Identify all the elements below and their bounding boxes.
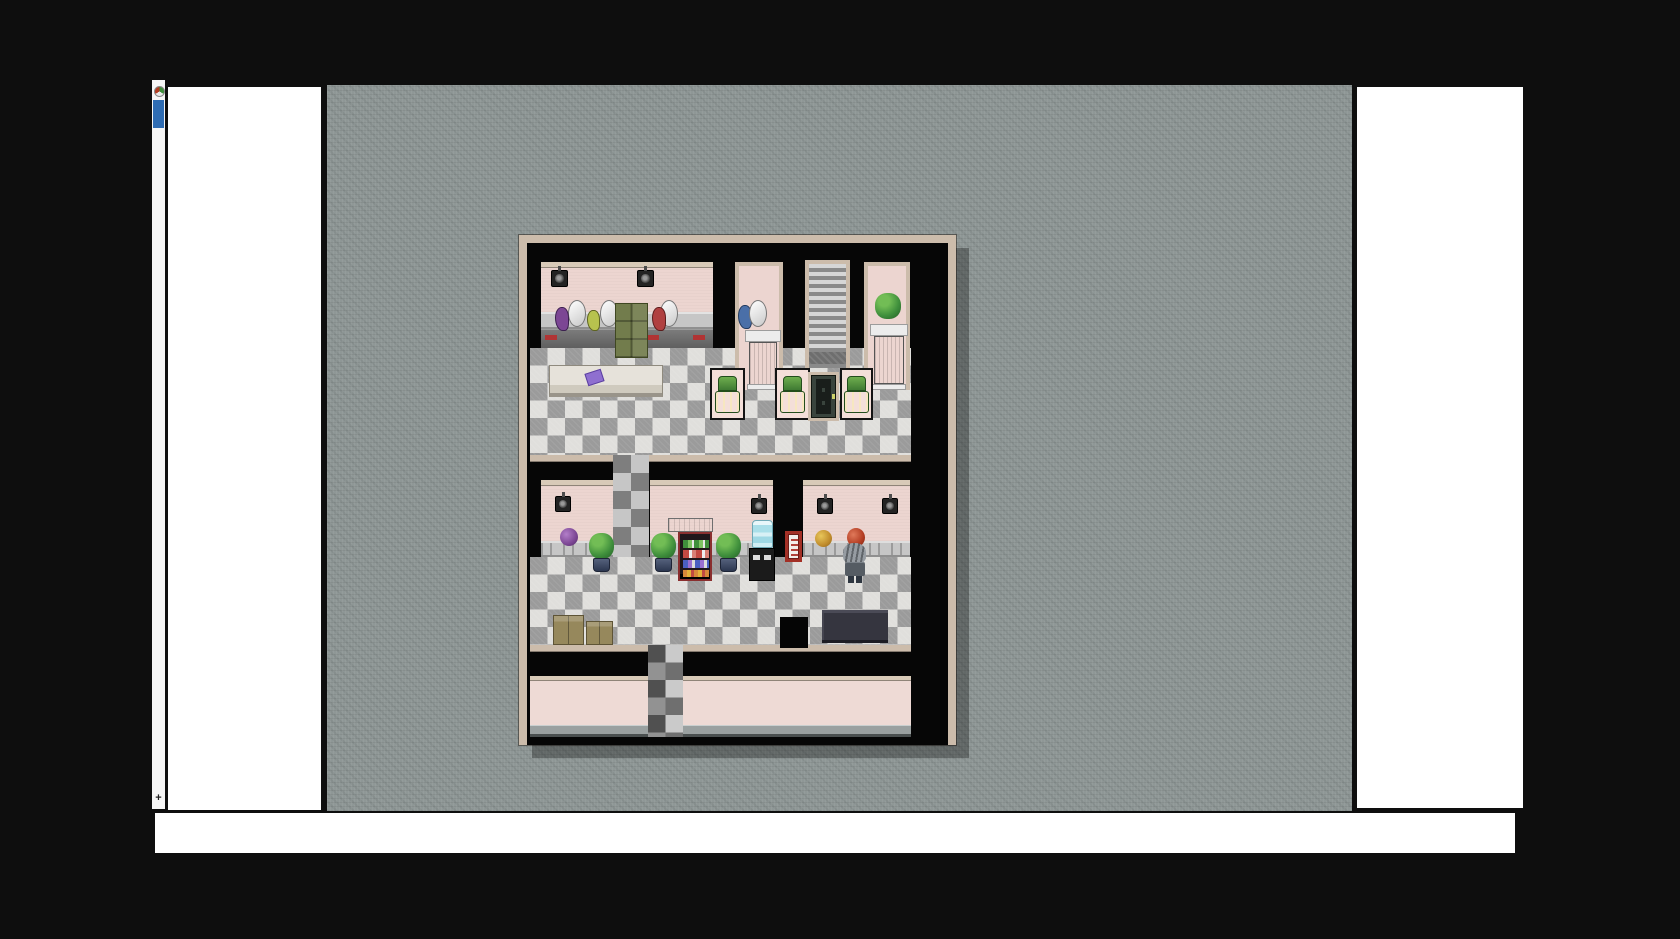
wall-stub [780,617,808,648]
potted-plant [715,533,742,573]
blue-selection-indicator[interactable] [153,100,164,128]
food-display-case [678,532,712,581]
wall-speaker-icon [637,270,654,287]
exterior-wall-face [530,681,911,725]
divider-top-right [649,455,911,462]
counter-red-accent-2 [647,335,659,340]
dryer-hood-1 [568,300,586,327]
right-blank-panel [1357,87,1523,808]
counter-red-accent-1 [545,335,557,340]
chair-back [718,376,737,391]
plant-foliage [651,533,676,559]
divider-top-left [530,455,613,462]
shelf-packs [683,560,709,568]
cardboard-box-small [586,621,613,645]
exterior-front-wall [530,676,911,737]
stair-landing [809,352,846,364]
wall-speaker-icon [551,270,568,287]
plant-foliage [589,533,614,559]
left-blank-panel [168,87,321,810]
bottom-blank-bar [155,813,1515,853]
exterior-wall-edge [530,734,911,737]
water-cooler-body [749,548,775,581]
styling-chair-panel-2 [775,368,810,420]
favicon-icon[interactable] [154,86,165,97]
npc-hair [843,543,866,564]
shelf-snacks [683,570,709,577]
hair-dryer-red [652,307,666,331]
potted-plant [588,533,615,573]
window-edge-strip: + [152,80,165,809]
corridor-exit-path [648,645,683,737]
page-background: + [0,0,1680,939]
plant-pot [655,558,672,572]
chair-seat [715,391,740,413]
poster-print [791,539,798,556]
styling-chair-panel-3 [840,368,873,420]
chair-back [783,376,802,391]
game-map[interactable] [519,235,956,745]
wig-ball-yellow [815,530,832,547]
reception-desk [822,610,888,643]
shelf-salads [683,540,709,548]
massage-table [549,365,663,397]
pedestal-column [749,342,777,388]
pedestal-slab [745,330,781,342]
topiary-ball [875,293,901,319]
wig-ball-purple [560,528,578,546]
pedestal-plinth [872,384,906,390]
game-canvas-area[interactable] [327,85,1352,811]
npc-jacket [845,562,865,576]
hair-dryer-yellow [587,310,600,331]
chair-back [847,376,866,391]
counter-red-accent-3 [693,335,705,340]
green-cabinet [615,303,648,358]
npc-leg [856,576,862,583]
hair-dryer-purple [555,307,569,331]
shelf-meats [683,550,709,558]
divider-bottom-left [530,645,648,652]
red-wall-poster [785,531,802,562]
staircase [805,260,850,368]
display-case-vent [668,518,713,532]
wall-speaker-icon [817,498,833,514]
chair-seat [780,391,805,413]
npc-gray-haired [842,543,867,583]
plus-icon[interactable]: + [153,792,164,804]
green-door [808,372,839,421]
water-cooler-bottle [752,520,773,548]
chair-seat [844,391,869,413]
purple-book [584,369,604,387]
wall-speaker-icon [751,498,767,514]
styling-chair-panel-1 [710,368,745,420]
exterior-wall-base [530,725,911,734]
wall-speaker-icon [555,496,571,512]
potted-plant [650,533,677,573]
wall-speaker-icon [882,498,898,514]
plant-pot [720,558,737,572]
corridor-between-halls [613,455,649,557]
npc-leg [848,576,854,583]
cardboard-box-large [553,615,584,645]
pedestal-slab [870,324,908,336]
plant-pot [593,558,610,572]
plant-foliage [716,533,741,559]
dryer-hood-4 [749,300,767,327]
pedestal-column [874,336,904,384]
